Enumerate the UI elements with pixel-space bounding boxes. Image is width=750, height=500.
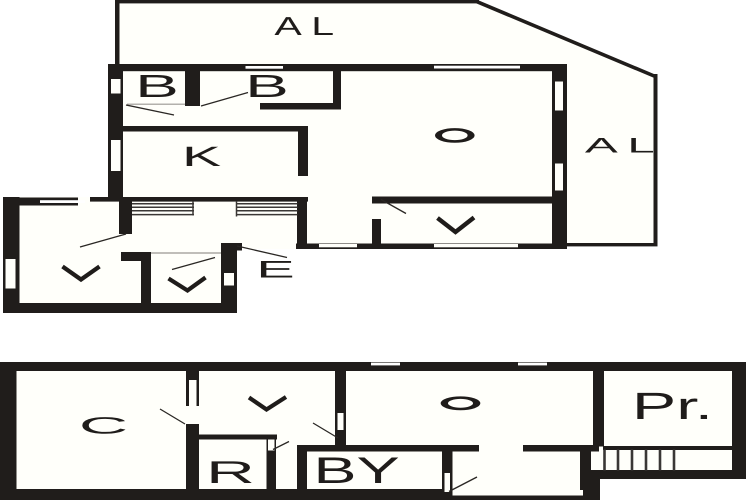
svg-text:C: C xyxy=(79,413,128,439)
svg-text:B: B xyxy=(135,68,179,104)
svg-text:R: R xyxy=(206,454,255,490)
svg-text:B: B xyxy=(245,68,289,104)
svg-text:E: E xyxy=(256,257,294,284)
svg-text:K: K xyxy=(182,141,222,172)
svg-text:Pr.: Pr. xyxy=(632,386,713,428)
svg-text:AL: AL xyxy=(585,135,664,158)
svg-text:BY: BY xyxy=(313,450,399,491)
svg-text:AL: AL xyxy=(274,11,343,41)
